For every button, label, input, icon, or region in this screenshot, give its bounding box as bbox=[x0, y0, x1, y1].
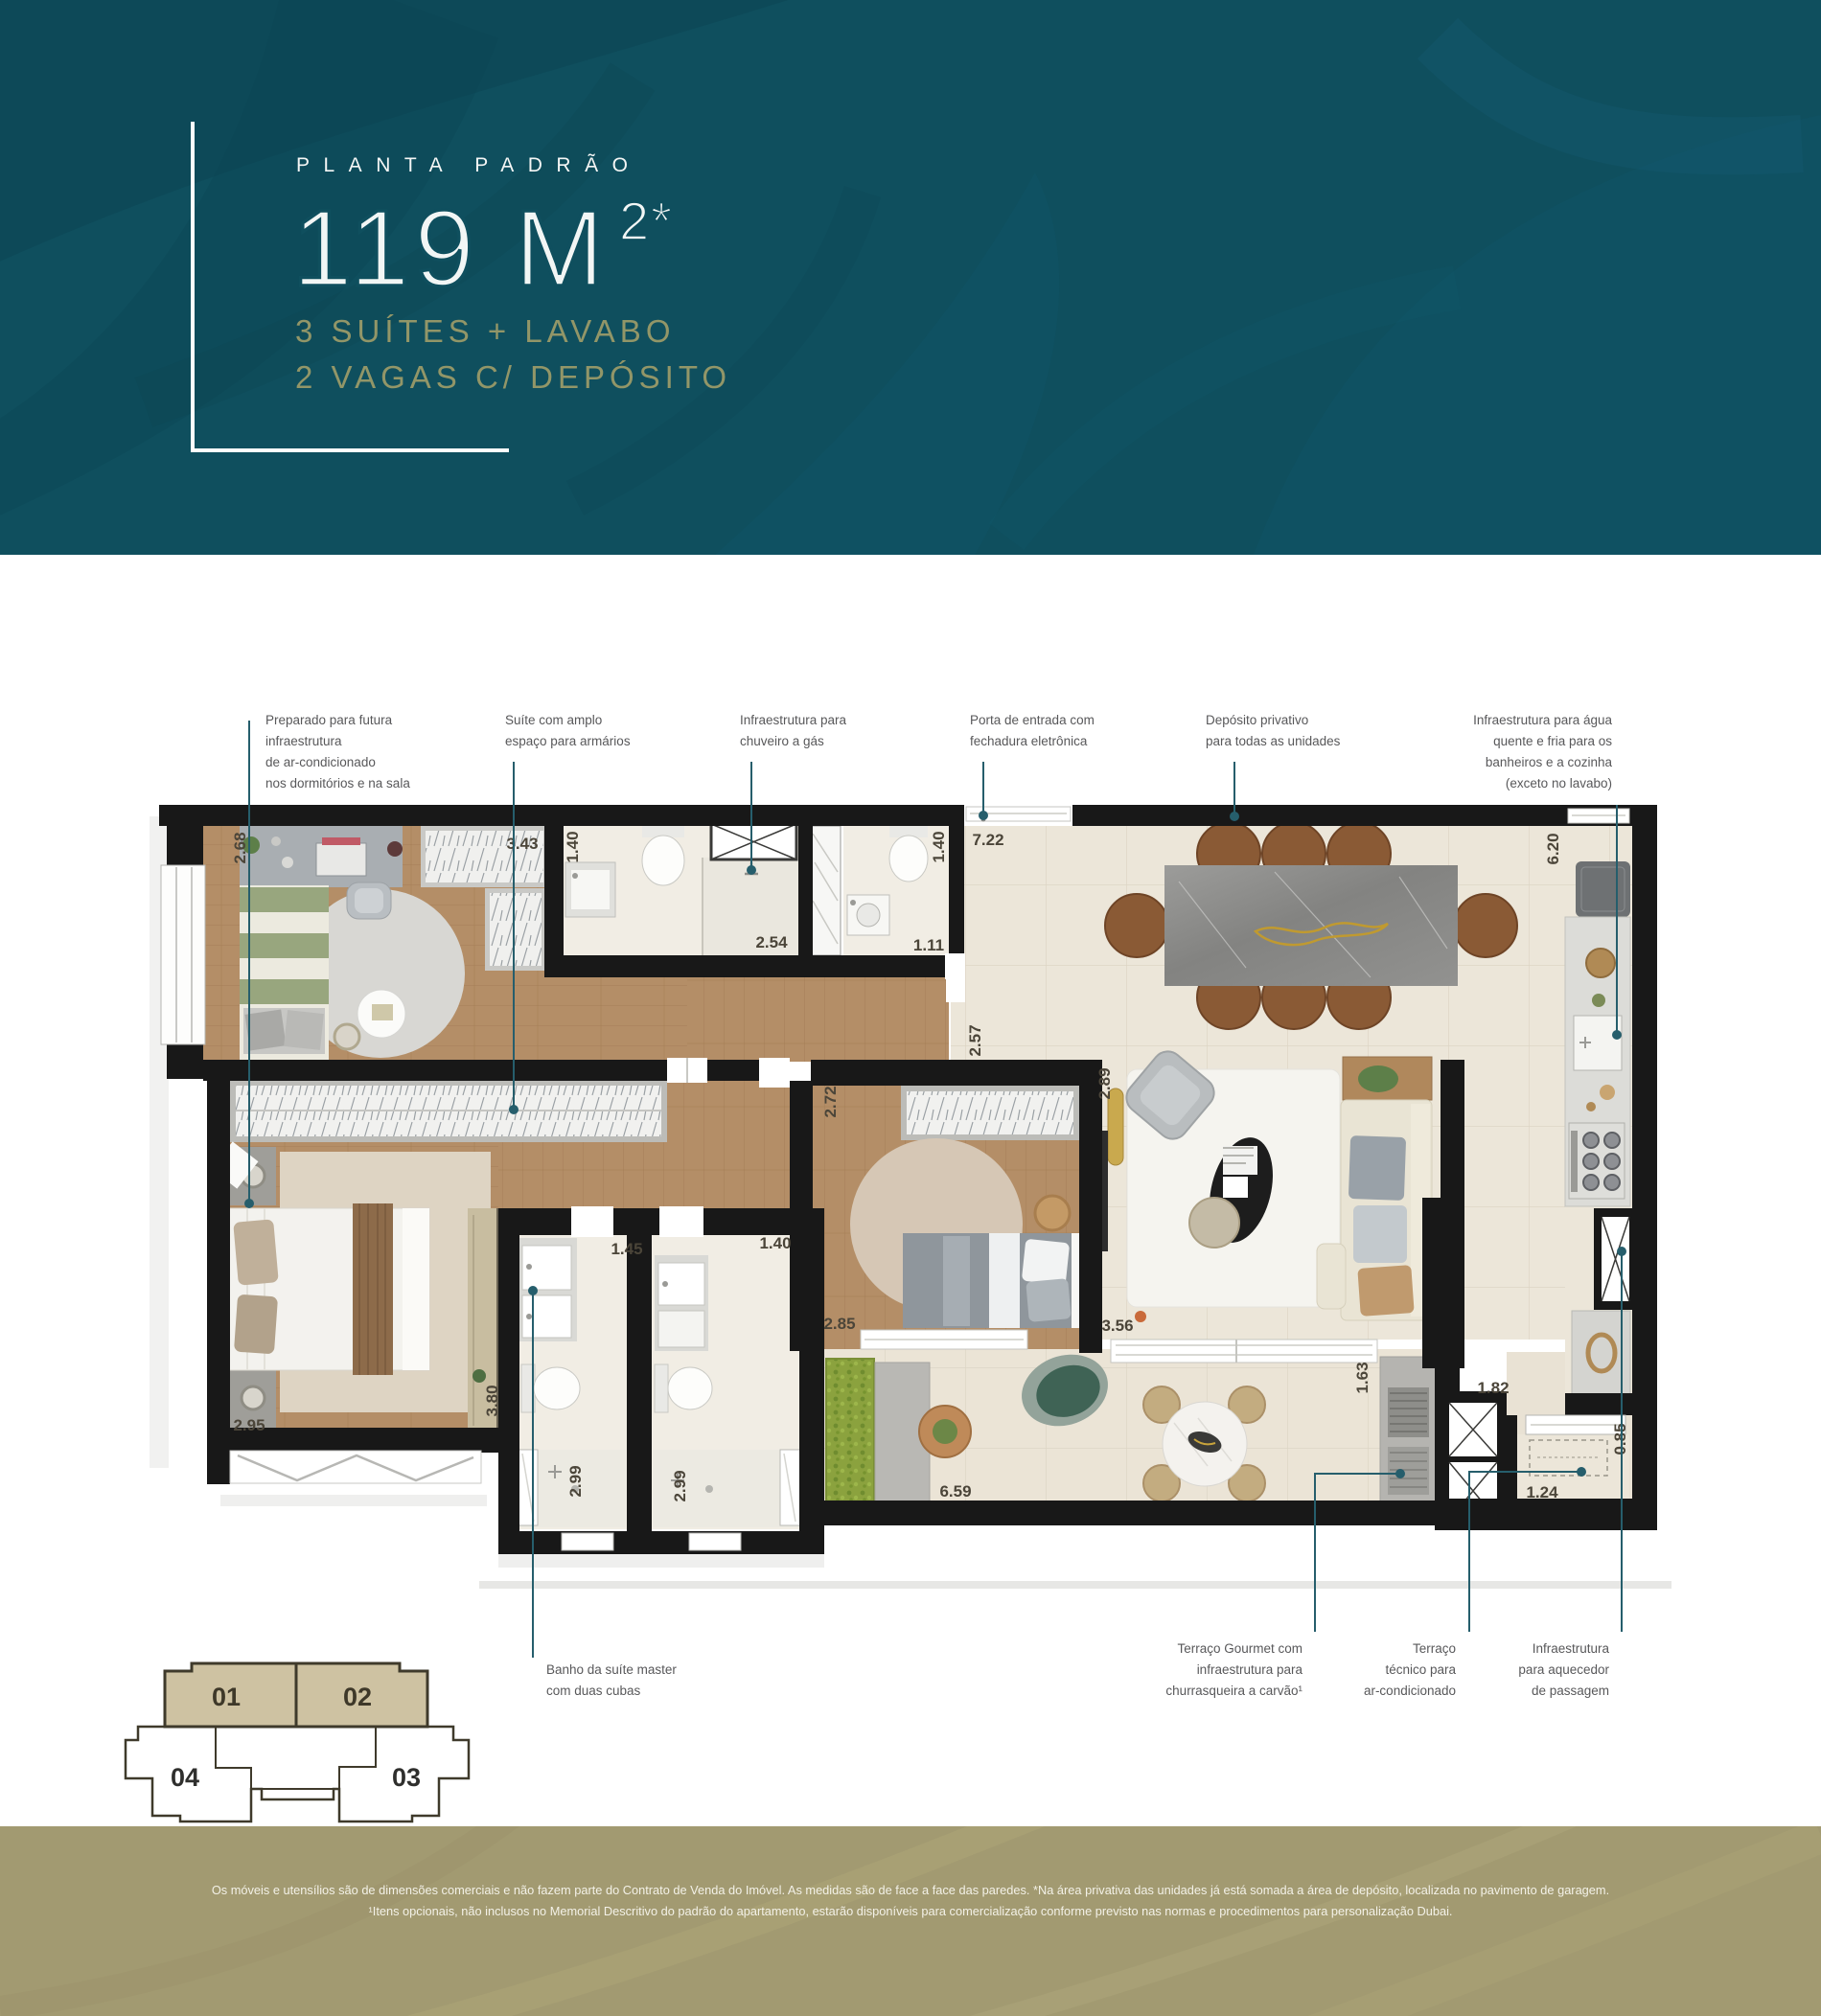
svg-text:2.99: 2.99 bbox=[566, 1465, 585, 1497]
svg-text:1.40: 1.40 bbox=[564, 831, 582, 862]
svg-text:3.56: 3.56 bbox=[1101, 1317, 1133, 1335]
svg-text:2.95: 2.95 bbox=[233, 1416, 265, 1434]
svg-text:2*: 2* bbox=[619, 191, 674, 251]
svg-text:2.99: 2.99 bbox=[671, 1470, 689, 1501]
svg-text:02: 02 bbox=[343, 1683, 372, 1711]
svg-text:1.40: 1.40 bbox=[759, 1234, 791, 1252]
svg-text:6.20: 6.20 bbox=[1544, 833, 1562, 864]
svg-text:3.43: 3.43 bbox=[506, 835, 538, 853]
svg-text:1.45: 1.45 bbox=[611, 1240, 642, 1258]
svg-text:1.24: 1.24 bbox=[1526, 1483, 1558, 1501]
svg-text:7.22: 7.22 bbox=[972, 831, 1003, 849]
svg-text:2.54: 2.54 bbox=[755, 933, 788, 951]
svg-text:04: 04 bbox=[171, 1763, 199, 1792]
svg-text:1.82: 1.82 bbox=[1477, 1379, 1509, 1397]
svg-text:6.59: 6.59 bbox=[939, 1482, 971, 1501]
svg-text:03: 03 bbox=[392, 1763, 421, 1792]
svg-text:0.85: 0.85 bbox=[1611, 1423, 1629, 1455]
svg-text:2.57: 2.57 bbox=[966, 1024, 984, 1056]
svg-text:119 M: 119 M bbox=[292, 188, 610, 309]
svg-text:2.72: 2.72 bbox=[821, 1086, 840, 1117]
svg-text:2.68: 2.68 bbox=[231, 832, 249, 863]
svg-text:2.85: 2.85 bbox=[823, 1315, 855, 1333]
svg-text:1.11: 1.11 bbox=[913, 936, 944, 954]
svg-text:01: 01 bbox=[212, 1683, 241, 1711]
svg-text:2.89: 2.89 bbox=[1095, 1067, 1114, 1099]
svg-text:3.80: 3.80 bbox=[483, 1385, 501, 1416]
svg-text:1.63: 1.63 bbox=[1353, 1362, 1372, 1393]
svg-text:1.40: 1.40 bbox=[930, 831, 948, 862]
